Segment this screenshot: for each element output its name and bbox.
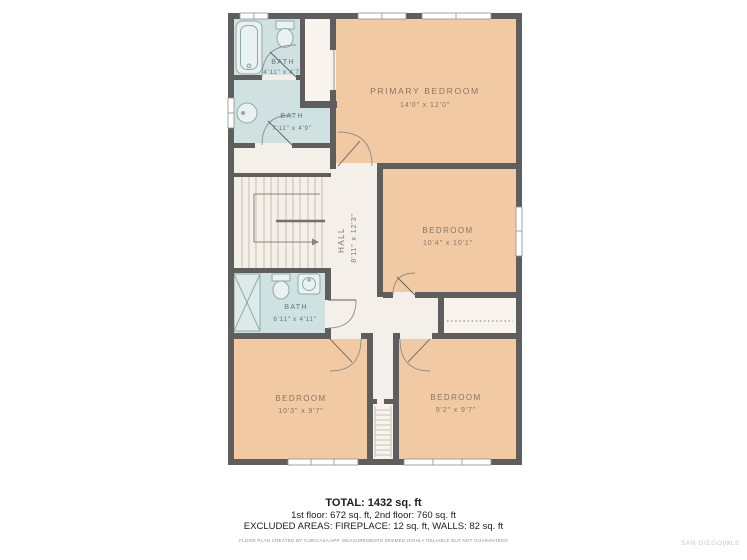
toilet-icon: [277, 29, 293, 48]
sink-icon: [237, 103, 257, 123]
floor-plan-svg: BATH 4'11" x 4'7" BATH 7'11" x 4'9" BATH…: [0, 0, 747, 560]
closet-bedroom-right: [444, 298, 516, 333]
label-bath-lower: BATH: [284, 302, 307, 311]
label-hall: HALL: [337, 227, 346, 253]
floor-areas-text: 1st floor: 672 sq. ft, 2nd floor: 760 sq…: [0, 510, 747, 521]
label-bedroom-bottom-left-dims: 10'3" x 9'7": [278, 408, 323, 415]
window: [358, 13, 406, 19]
mls-watermark: SAN DIEGO|MLS: [681, 540, 740, 547]
window: [404, 459, 491, 465]
label-bath-top-dims: 4'11" x 4'7": [263, 69, 302, 76]
toilet-tank-icon: [276, 21, 294, 29]
closet-top: [305, 19, 331, 101]
label-bath-top: BATH: [271, 57, 294, 66]
toilet-icon: [273, 281, 289, 299]
window: [228, 98, 234, 128]
label-bath-mid: BATH: [280, 111, 303, 120]
label-bedroom-bottom-left: BEDROOM: [275, 394, 326, 403]
window: [240, 13, 268, 19]
disclaimer-text: FLOOR PLAN CREATED BY CUBICASA APP. MEAS…: [0, 538, 747, 543]
window: [422, 13, 491, 19]
closet-linen: [373, 404, 393, 459]
window: [288, 459, 358, 465]
label-bath-lower-dims: 6'11" x 4'11": [273, 316, 316, 323]
toilet-tank-icon: [272, 274, 290, 281]
label-primary-bedroom-dims: 14'0" x 12'0": [400, 102, 450, 109]
label-bedroom-bottom-right-dims: 9'2" x 9'7": [436, 407, 477, 414]
area-summary: TOTAL: 1432 sq. ft 1st floor: 672 sq. ft…: [0, 497, 747, 543]
label-hall-dims: 8'11" x 12'3": [351, 213, 358, 263]
label-bedroom-bottom-right: BEDROOM: [430, 393, 481, 402]
total-area-text: TOTAL: 1432 sq. ft: [0, 497, 747, 510]
floor-plan-page: BATH 4'11" x 4'7" BATH 7'11" x 4'9" BATH…: [0, 0, 747, 560]
window: [516, 207, 522, 256]
tub-drain-icon: [247, 64, 251, 68]
excluded-areas-text: EXCLUDED AREAS: FIREPLACE: 12 sq. ft, WA…: [0, 521, 747, 532]
label-bath-mid-dims: 7'11" x 4'9": [272, 125, 311, 132]
label-bedroom-right-dims: 10'4" x 10'1": [423, 240, 473, 247]
label-primary-bedroom: PRIMARY BEDROOM: [370, 86, 480, 96]
label-bedroom-right: BEDROOM: [422, 226, 473, 235]
